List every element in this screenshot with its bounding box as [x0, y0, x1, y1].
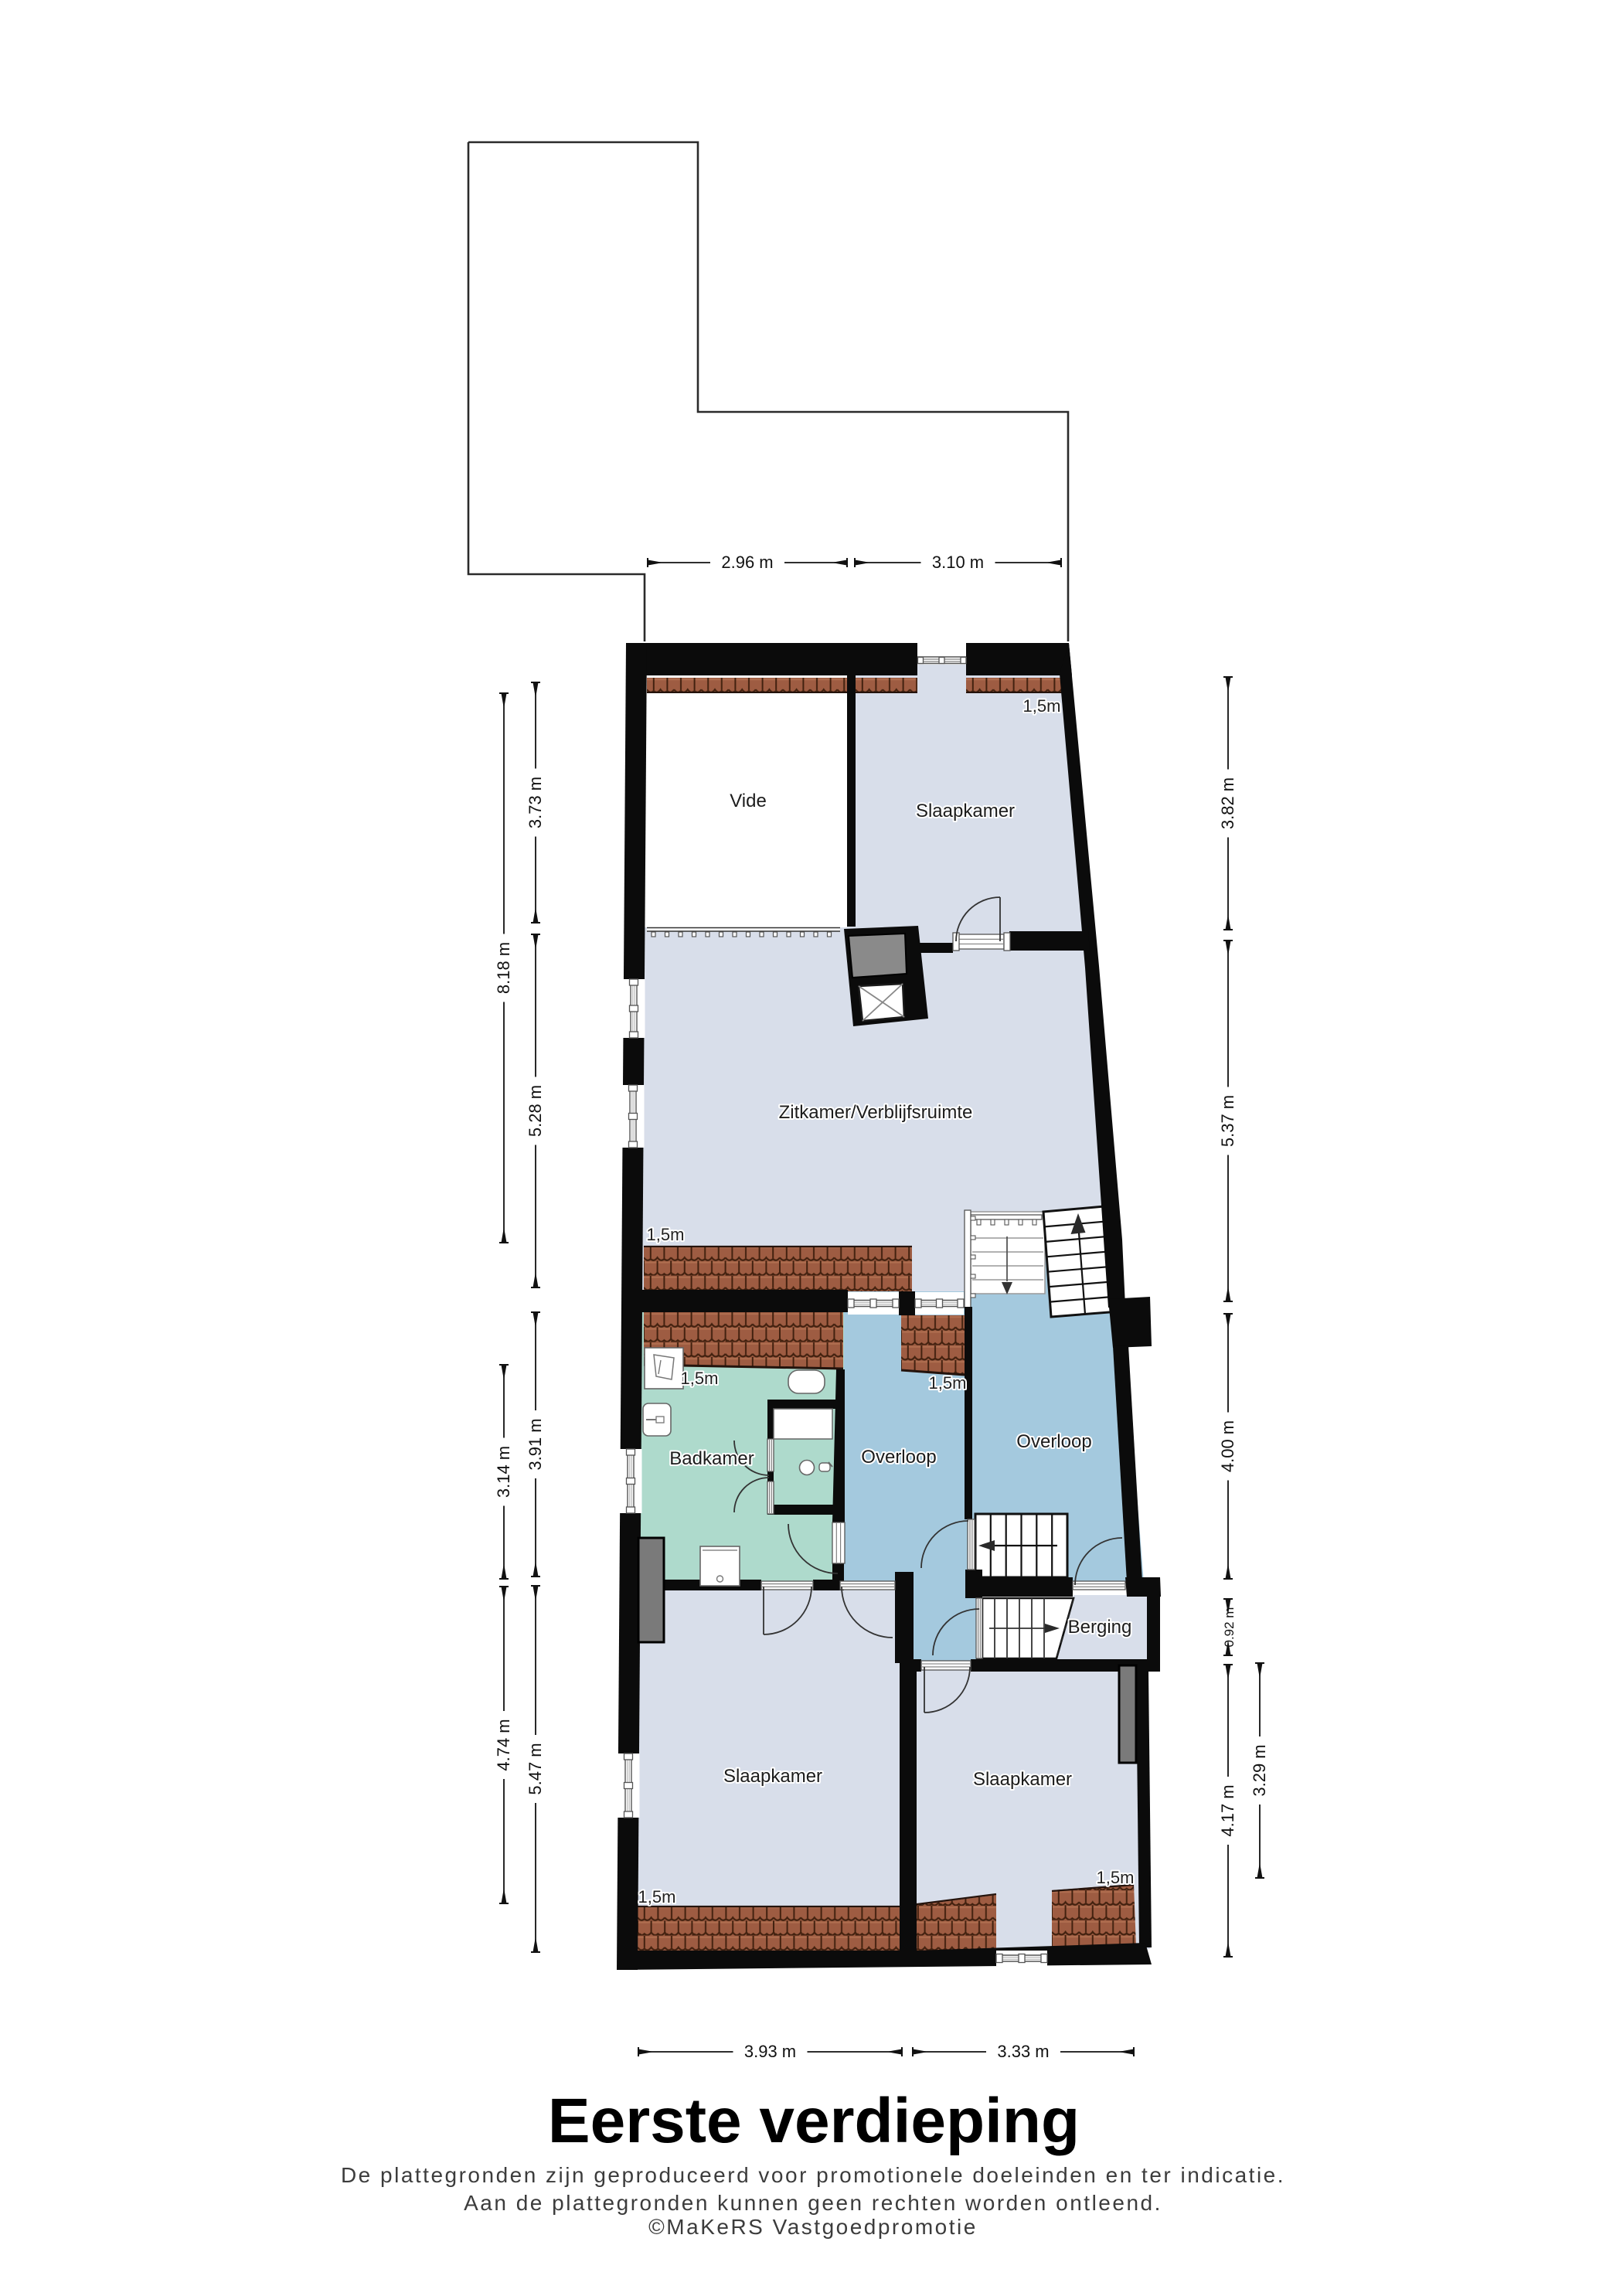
svg-text:1,5m: 1,5m: [647, 1225, 685, 1244]
svg-text:1,5m: 1,5m: [638, 1887, 676, 1907]
svg-text:3.33 m: 3.33 m: [997, 2042, 1049, 2061]
svg-text:2.96 m: 2.96 m: [721, 553, 773, 572]
svg-text:3.93 m: 3.93 m: [744, 2042, 796, 2061]
svg-text:Badkamer: Badkamer: [669, 1448, 754, 1469]
svg-text:8.18 m: 8.18 m: [494, 942, 513, 994]
svg-text:5.37 m: 5.37 m: [1218, 1095, 1237, 1147]
svg-text:Vide: Vide: [730, 791, 767, 811]
svg-text:1,5m: 1,5m: [929, 1373, 967, 1393]
svg-text:3.10 m: 3.10 m: [932, 553, 984, 572]
svg-text:5.28 m: 5.28 m: [526, 1085, 545, 1137]
svg-text:Slaapkamer: Slaapkamer: [973, 1769, 1072, 1790]
svg-text:3.91 m: 3.91 m: [526, 1418, 545, 1470]
svg-text:3.29 m: 3.29 m: [1250, 1744, 1269, 1796]
svg-text:3.73 m: 3.73 m: [526, 777, 545, 828]
svg-text:0.92 m: 0.92 m: [1222, 1607, 1237, 1648]
svg-text:Slaapkamer: Slaapkamer: [916, 801, 1015, 821]
svg-text:4.74 m: 4.74 m: [494, 1719, 513, 1770]
svg-text:4.00 m: 4.00 m: [1218, 1420, 1237, 1472]
svg-text:Overloop: Overloop: [1016, 1431, 1091, 1452]
svg-text:De plattegronden zijn geproduc: De plattegronden zijn geproduceerd voor …: [341, 2163, 1285, 2187]
svg-text:Berging: Berging: [1068, 1617, 1132, 1638]
svg-text:1,5m: 1,5m: [1097, 1868, 1135, 1887]
svg-text:5.47 m: 5.47 m: [526, 1743, 545, 1794]
svg-text:Slaapkamer: Slaapkamer: [723, 1766, 822, 1787]
svg-text:1,5m: 1,5m: [681, 1369, 719, 1388]
svg-text:Zitkamer/Verblijfsruimte: Zitkamer/Verblijfsruimte: [779, 1102, 973, 1123]
svg-text:1,5m: 1,5m: [1023, 696, 1061, 716]
svg-text:4.17 m: 4.17 m: [1218, 1784, 1237, 1836]
svg-text:Aan de plattegronden kunnen ge: Aan de plattegronden kunnen geen rechten…: [464, 2191, 1162, 2215]
svg-text:3.14 m: 3.14 m: [494, 1446, 513, 1498]
svg-text:©MaKeRS Vastgoedpromotie: ©MaKeRS Vastgoedpromotie: [648, 2215, 978, 2239]
svg-text:3.82 m: 3.82 m: [1218, 777, 1237, 829]
svg-text:Eerste verdieping: Eerste verdieping: [548, 2086, 1080, 2156]
svg-text:Overloop: Overloop: [861, 1447, 936, 1468]
